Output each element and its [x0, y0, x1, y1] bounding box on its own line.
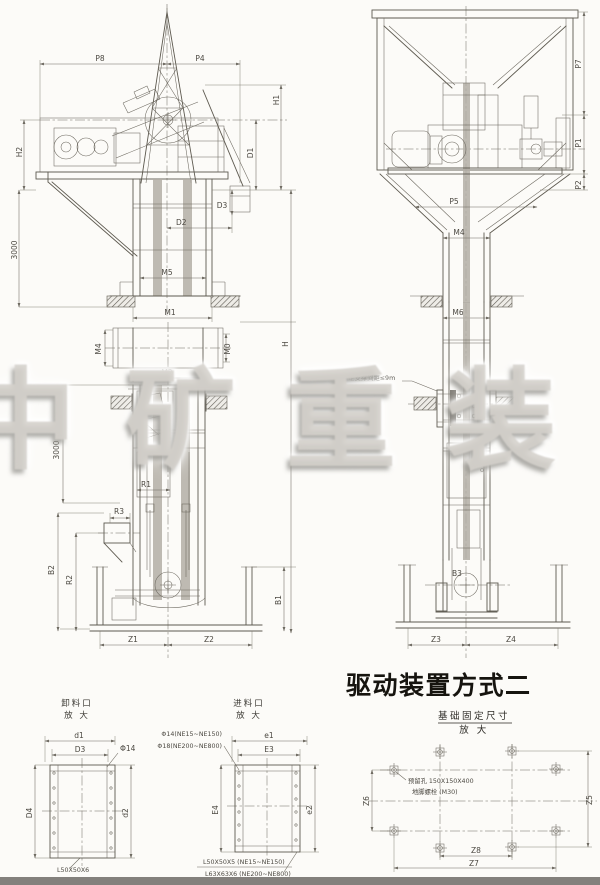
head-funnel: [380, 174, 570, 233]
boot-side-dimensions: M4 M0 M2 3000 R1 R3 B2 R2 B1 H Z1 Z2: [47, 190, 296, 649]
foundation-hatch: [211, 296, 239, 307]
dim-label-d2: d2: [121, 808, 130, 818]
dim-label-3000: 3000: [52, 440, 61, 459]
foundation-title-2: 放 大: [459, 724, 489, 736]
bottom-scan-bar: [0, 877, 600, 885]
foundation-section: 驱动装置方式二 基础固定尺寸 放 大 预留孔 150X150X400 地脚螺栓 …: [346, 671, 597, 872]
dim-label-h2: H2: [15, 147, 24, 158]
wall-hatch: [414, 397, 436, 410]
dim-label-z7: Z7: [469, 859, 479, 868]
boot-front: [396, 443, 570, 628]
dim-label-m2: M2: [161, 368, 172, 377]
dim-label-z4: Z4: [506, 635, 516, 644]
dim-label-p1: P1: [574, 138, 583, 148]
dim-label-d3: D3: [217, 201, 228, 210]
dim-label-z8: Z8: [471, 846, 481, 855]
inlet-title: 进料口: [233, 698, 265, 709]
drawing-sheet: P8 P4 H1 H2 D1 D3 D2 3000 M5 M1: [0, 0, 600, 885]
dim-label-m1: M1: [164, 308, 175, 317]
inlet-title-2: 放 大: [236, 710, 262, 721]
upper-casing: [48, 172, 240, 307]
dim-label-z2: Z2: [204, 635, 214, 644]
bolt-holes: [53, 772, 112, 849]
dim-label-E3: E3: [264, 745, 274, 754]
anchor-bolt-holes: [387, 744, 563, 855]
discharge-title-2: 放 大: [64, 710, 90, 721]
dim-label-d1: D1: [246, 147, 255, 158]
dim-label-m0: M0: [223, 343, 232, 354]
floor-hatch: [421, 296, 442, 307]
wall-support-clamp: 固定支撑间距≤9m 或随楼层固定: [342, 373, 528, 427]
dim-label-m6: M6: [452, 308, 463, 317]
dim-label-p8: P8: [95, 54, 105, 63]
floor-hatch: [491, 296, 512, 307]
anchor-bolt-note: 地脚螺栓 (M30): [412, 787, 458, 796]
dim-label-b2: B2: [47, 565, 56, 575]
dim-label-D3: D3: [75, 745, 86, 754]
dim-label-b3: B3: [452, 569, 462, 578]
dim-label-e2: e2: [305, 805, 314, 815]
discharge-chute: [203, 90, 250, 212]
dim-label-h1: H1: [272, 95, 281, 106]
dim-label-p2: P2: [574, 180, 583, 190]
angle-steel-note: L50X50X6: [57, 867, 89, 874]
feed-chute: [104, 523, 136, 562]
drive-type-title: 驱动装置方式二: [346, 671, 532, 700]
dim-label-r1: R1: [141, 480, 151, 489]
elevator-drawing: P8 P4 H1 H2 D1 D3 D2 3000 M5 M1: [0, 0, 600, 885]
dim-label-z5: Z5: [585, 795, 594, 805]
dim-label-E4: E4: [211, 805, 220, 815]
casing-front-dimensions: B3 Z3 Z4: [408, 308, 558, 649]
drive-platform: [36, 86, 228, 179]
casing-front-view: 固定支撑间距≤9m 或随楼层固定 B3 Z3 Z4: [342, 302, 570, 649]
reserve-hole-note: 预留孔 150X150X400: [408, 776, 474, 785]
dim-label-p7: P7: [574, 59, 583, 69]
angle-note-leader: [284, 852, 297, 872]
dim-label-d1: d1: [74, 731, 84, 740]
bolt-holes: [238, 772, 297, 841]
head-front-dimensions: P5 M4 P7 P1 P2 M6: [415, 12, 588, 322]
dim-label-m4: M4: [453, 228, 464, 237]
head-machinery: [388, 83, 570, 303]
foundation-hatch: [107, 296, 135, 307]
dim-label-m5: M5: [161, 268, 172, 277]
support-note-line2: 或随楼层固定: [352, 385, 390, 394]
reserve-hole-leader: [396, 772, 406, 780]
dim-label-3000: 3000: [10, 240, 19, 259]
inlet-port-detail: 进料口 放 大 Φ14(NE15~NE150) Φ18(NE200~NE800)…: [157, 698, 319, 878]
dim-label-b1: B1: [274, 595, 283, 605]
boot-side-view: M4 M0 M2 3000 R1 R3 B2 R2 B1 H Z1 Z2: [47, 190, 296, 658]
hole-note-1: Φ14(NE15~NE150): [161, 731, 222, 738]
discharge-title: 卸料口: [61, 698, 93, 709]
wall-support-hatch: [206, 396, 227, 409]
support-note-line1: 固定支撑间距≤9m: [342, 373, 395, 382]
dim-label-z1: Z1: [128, 635, 138, 644]
casing-front: [443, 302, 490, 560]
hole-dia-label: Φ14: [120, 744, 136, 753]
hole-note-2: Φ18(NE200~NE800): [157, 743, 222, 750]
dim-label-D4: D4: [25, 807, 34, 818]
head-frame: [372, 10, 578, 170]
dim-label-p5: P5: [449, 197, 459, 206]
foundation-title: 基础固定尺寸: [438, 710, 510, 722]
discharge-port-detail: 卸料口 放 大 d1 D3 Φ14 D4 d2 L50X50X6: [25, 698, 136, 874]
dim-label-z3: Z3: [431, 635, 441, 644]
dim-label-p4: P4: [195, 54, 205, 63]
dim-label-z6: Z6: [362, 796, 371, 806]
support-note-leader: [402, 381, 437, 391]
angle-steel-note-2: L63X63X6 (NE200~NE800): [205, 871, 291, 878]
head-front-view: P5 M4 P7 P1 P2 M6: [372, 6, 588, 658]
wall-hatch: [496, 397, 518, 410]
dim-label-e1: e1: [264, 731, 274, 740]
head-side-view: P8 P4 H1 H2 D1 D3 D2 3000 M5 M1: [10, 4, 296, 322]
leaders: [70, 753, 118, 868]
dim-label-r2: R2: [65, 575, 74, 585]
wall-support-hatch: [111, 396, 132, 409]
dim-label-d2: D2: [176, 218, 187, 227]
angle-steel-note-1: L50X50X5 (NE15~NE150): [203, 859, 285, 866]
dim-label-r3: R3: [114, 507, 124, 516]
hole-note-leader: [224, 746, 239, 770]
dim-label-m4: M4: [94, 343, 103, 354]
dim-label-h: H: [281, 341, 290, 347]
